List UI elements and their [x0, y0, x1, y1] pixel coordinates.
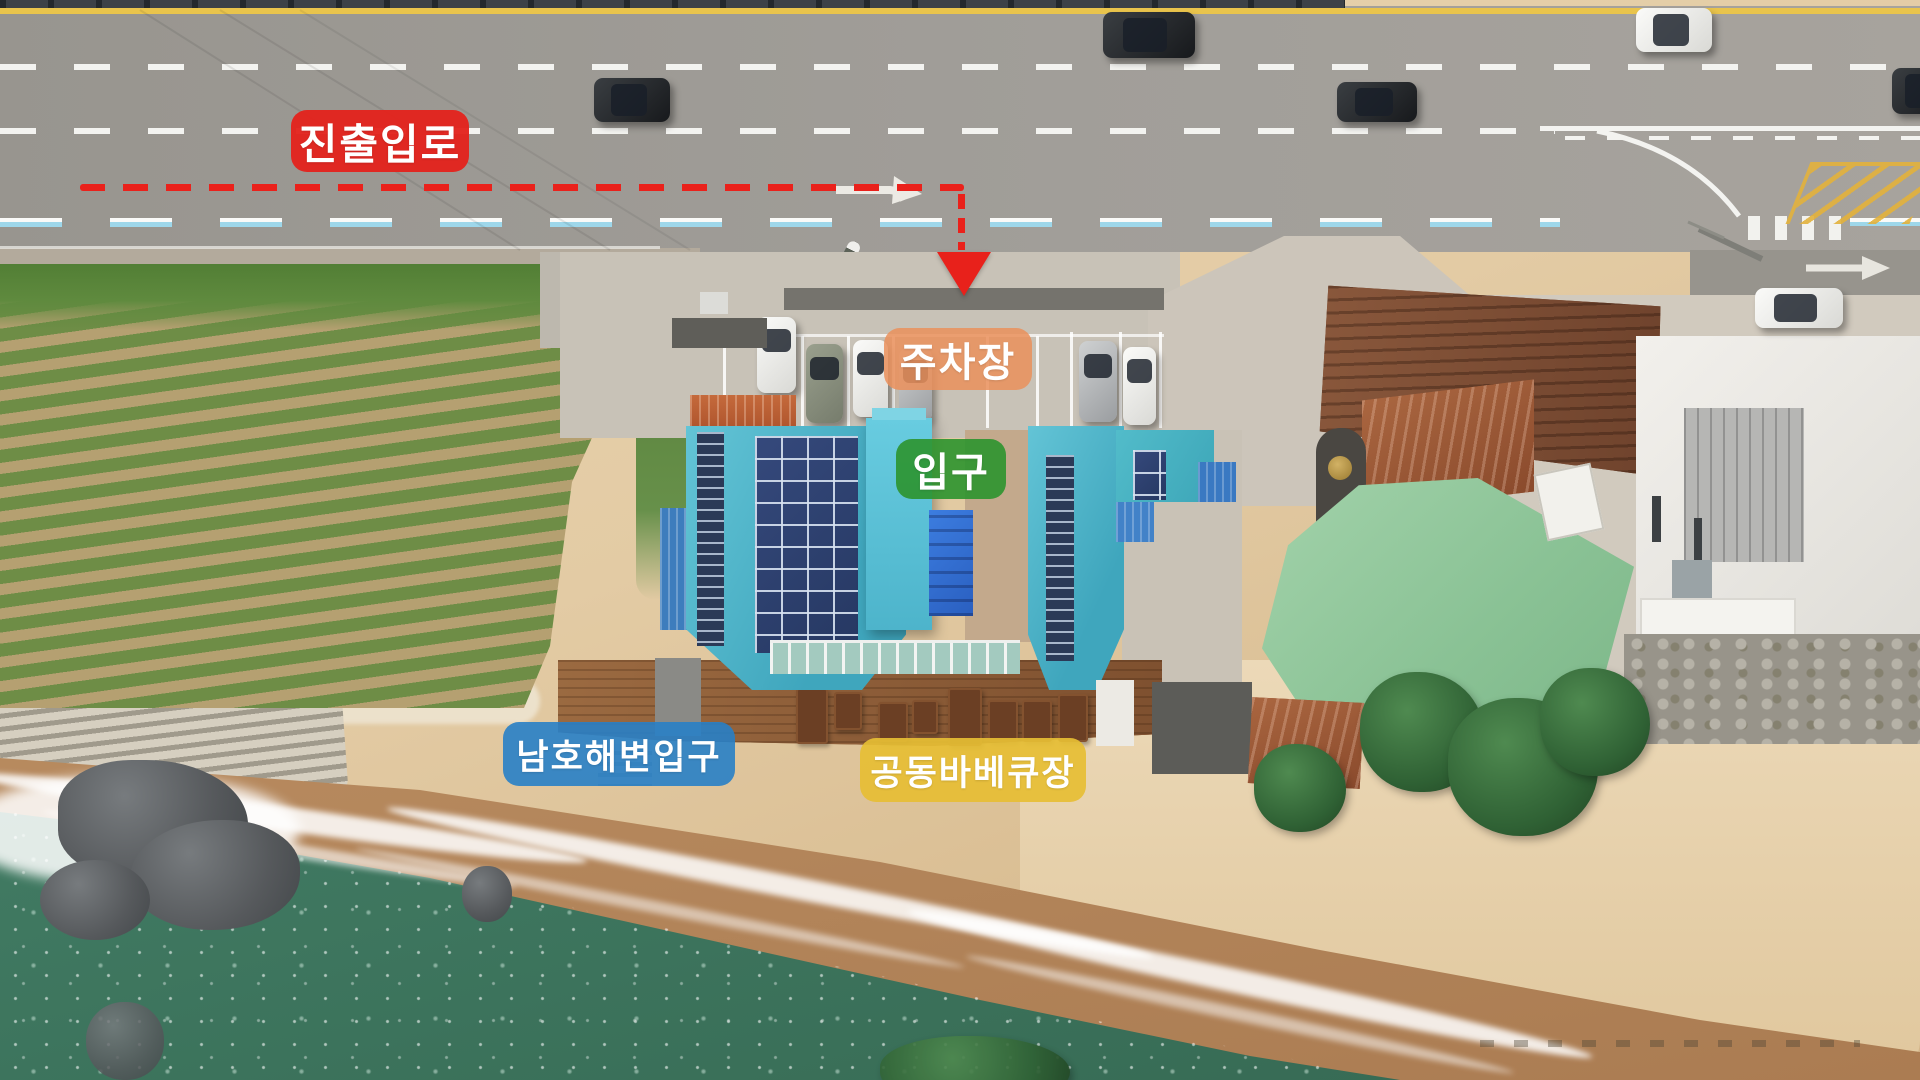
label-entrance-text: 입구 — [912, 440, 990, 498]
label-beach-entrance-text: 남호해변입구 — [516, 729, 721, 780]
utility-pole — [1699, 229, 1762, 259]
label-beach-entrance: 남호해변입구 — [503, 722, 735, 786]
straight-arrow-head — [1862, 256, 1890, 280]
label-route-access-text: 진출입로 — [299, 111, 462, 172]
label-parking: 주차장 — [884, 328, 1032, 390]
aerial-map-scene: 진출입로 주차장 입구 남호해변입구 공동바베큐장 — [0, 0, 1920, 1080]
route-dashed-line — [80, 184, 964, 191]
down-arrow-icon — [937, 252, 991, 296]
road-markings-overlay — [0, 0, 1920, 1080]
turn-lane-curve — [1597, 131, 1739, 216]
route-dashed-line-vertical — [958, 194, 965, 250]
label-parking-text: 주차장 — [900, 330, 1016, 388]
label-bbq-area: 공동바베큐장 — [860, 738, 1086, 802]
label-bbq-area-text: 공동바베큐장 — [870, 745, 1075, 796]
label-route-access: 진출입로 — [291, 110, 469, 172]
label-entrance: 입구 — [896, 439, 1006, 499]
